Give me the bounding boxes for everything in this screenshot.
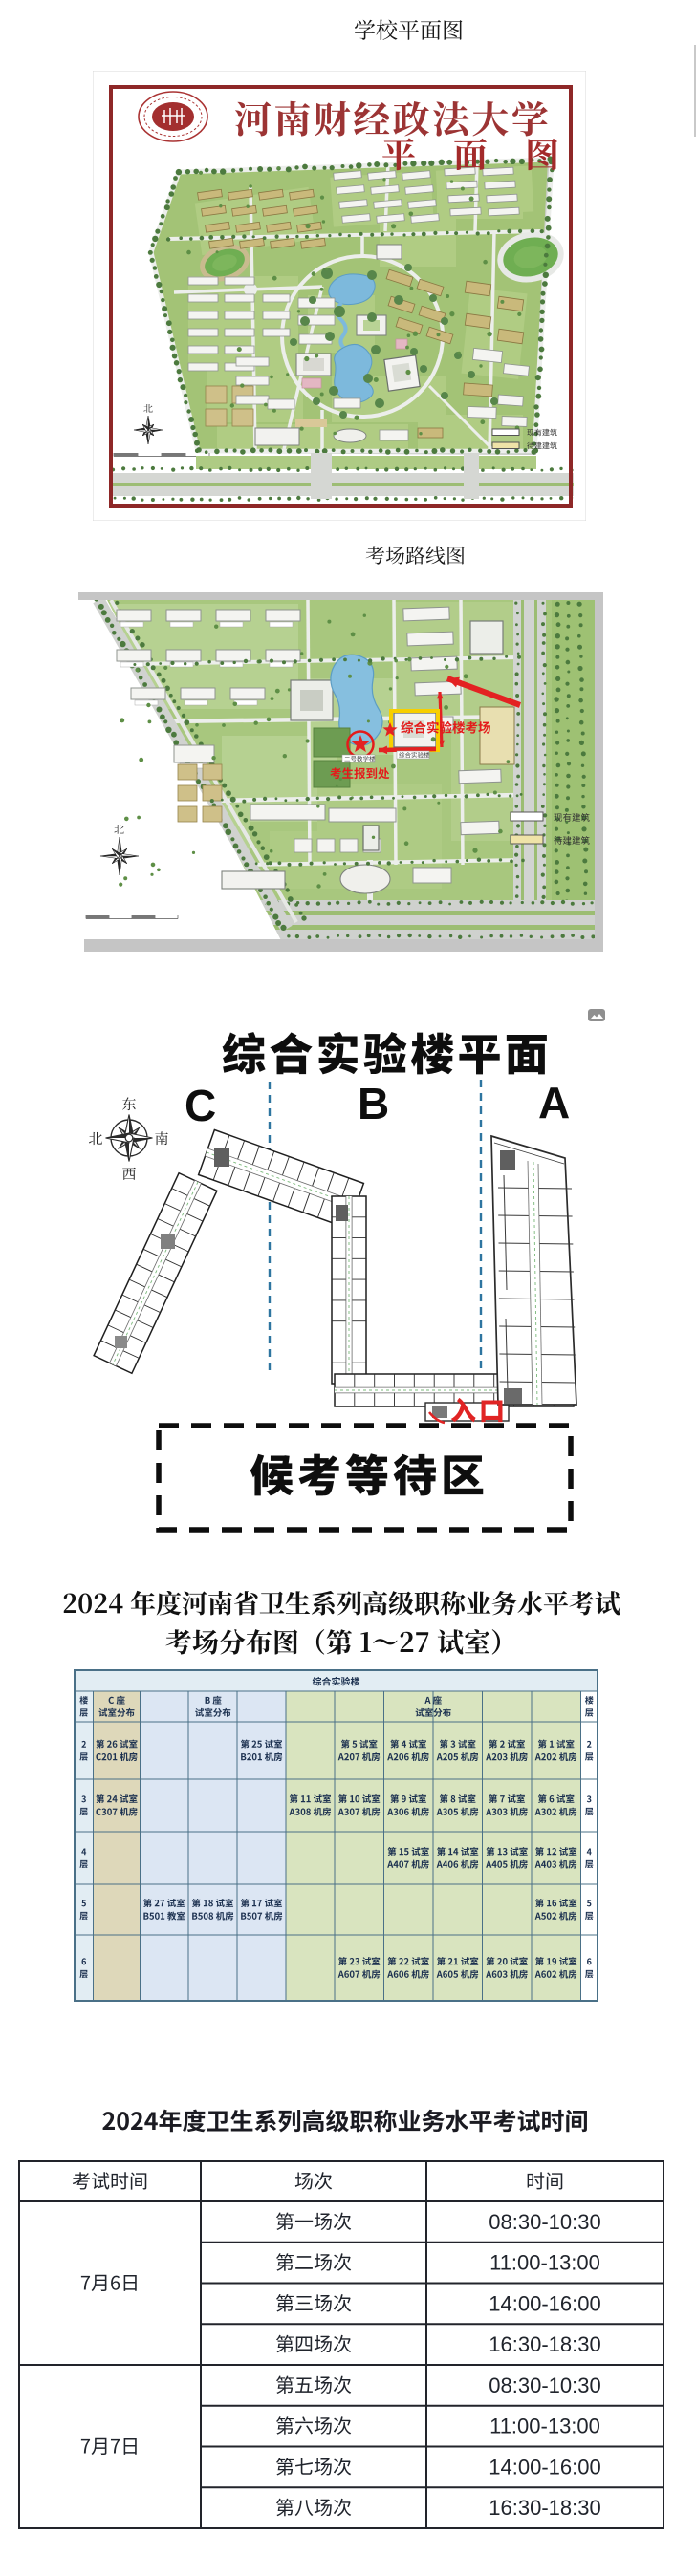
svg-text:C: C — [185, 1081, 216, 1130]
svg-text:14:00-16:00: 14:00-16:00 — [489, 2291, 600, 2315]
svg-text:08:30-10:30: 08:30-10:30 — [489, 2210, 600, 2234]
svg-text:16:30-18:30: 16:30-18:30 — [489, 2332, 600, 2356]
svg-text:11:00-13:00: 11:00-13:00 — [489, 2415, 600, 2438]
svg-text:A: A — [538, 1078, 570, 1127]
svg-text:11:00-13:00: 11:00-13:00 — [489, 2251, 600, 2275]
svg-text:14:00-16:00: 14:00-16:00 — [489, 2455, 600, 2479]
svg-text:B: B — [358, 1079, 389, 1128]
svg-text:16:30-18:30: 16:30-18:30 — [489, 2496, 600, 2520]
svg-text:08:30-10:30: 08:30-10:30 — [489, 2373, 600, 2397]
